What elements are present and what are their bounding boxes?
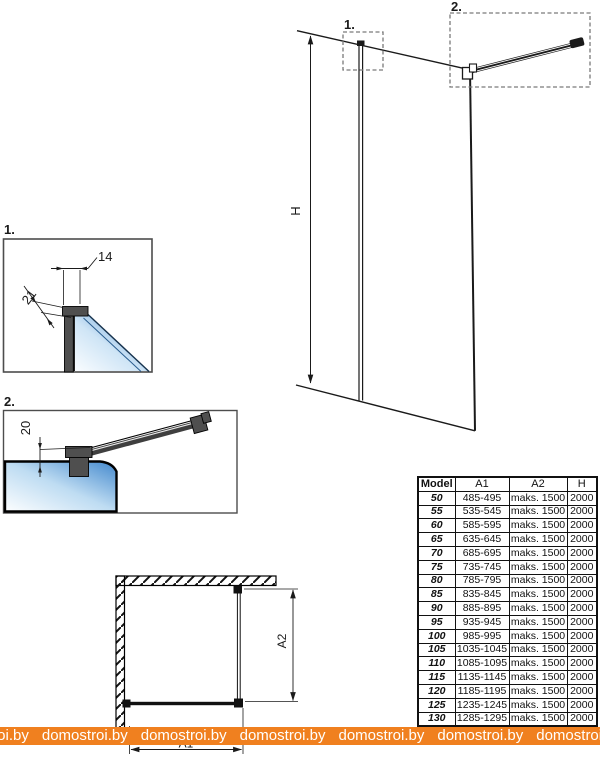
size-value-cell: 785-795 [455,574,509,588]
size-value-cell: 2000 [567,684,597,698]
model-cell: 50 [418,491,455,505]
size-value-cell: maks. 1500 [509,712,567,726]
size-table-row: 55535-545maks. 15002000 [418,505,597,519]
detail-2-view: 2. 20 [4,394,238,513]
callout-1-label: 1. [344,17,355,32]
size-table-row: 1051035-1045maks. 15002000 [418,643,597,657]
model-cell: 110 [418,657,455,671]
size-value-cell: 2000 [567,574,597,588]
size-table-row: 1151135-1145maks. 15002000 [418,671,597,685]
size-value-cell: 2000 [567,533,597,547]
watermark-text: domostroi.by [0,727,29,745]
watermark-text: domostroi.by [437,727,523,745]
model-cell: 95 [418,615,455,629]
size-table-row: 100985-995maks. 15002000 [418,629,597,643]
plan-dim-a2: A2 [244,589,298,702]
detail-1-view: 1. 14 [4,222,153,372]
size-value-cell: maks. 1500 [509,533,567,547]
size-value-cell: 935-945 [455,615,509,629]
size-table-header-cell: A2 [509,477,567,491]
glass-bottom-edge [296,385,475,431]
size-value-cell: 485-495 [455,491,509,505]
size-value-cell: maks. 1500 [509,546,567,560]
size-value-cell: maks. 1500 [509,671,567,685]
technical-drawing-page: H 1. 2. 1. [0,0,600,758]
model-cell: 75 [418,560,455,574]
size-table-header-cell: A1 [455,477,509,491]
size-value-cell: maks. 1500 [509,588,567,602]
model-cell: 105 [418,643,455,657]
size-table-row: 70685-695maks. 15002000 [418,546,597,560]
size-value-cell: maks. 1500 [509,643,567,657]
size-value-cell: maks. 1500 [509,519,567,533]
size-value-cell: 2000 [567,712,597,726]
detail-2-clamp [66,447,93,477]
plan-glass [123,699,244,708]
model-cell: 120 [418,684,455,698]
size-table-row: 60585-595maks. 15002000 [418,519,597,533]
size-value-cell: 2000 [567,671,597,685]
model-cell: 100 [418,629,455,643]
detail-1-label: 1. [4,222,15,237]
plan-support-bar [234,586,243,699]
watermark-text: domostroi.by [42,727,128,745]
size-value-cell: 1235-1245 [455,698,509,712]
size-table-row: 65635-645maks. 15002000 [418,533,597,547]
size-value-cell: 535-545 [455,505,509,519]
size-table-row: 75735-745maks. 15002000 [418,560,597,574]
size-value-cell: 1285-1295 [455,712,509,726]
support-bar [463,37,585,79]
dim-20-label: 20 [18,421,33,435]
watermark-text: domostroi.by [536,727,600,745]
model-cell: 115 [418,671,455,685]
size-value-cell: 685-695 [455,546,509,560]
model-cell: 60 [418,519,455,533]
size-value-cell: 1085-1095 [455,657,509,671]
size-table-row: 1201185-1195maks. 15002000 [418,684,597,698]
dim-a2-label: A2 [275,633,289,648]
size-value-cell: maks. 1500 [509,505,567,519]
size-value-cell: maks. 1500 [509,657,567,671]
model-cell: 55 [418,505,455,519]
size-value-cell: maks. 1500 [509,491,567,505]
size-value-cell: 2000 [567,519,597,533]
size-value-cell: 835-845 [455,588,509,602]
size-value-cell: 2000 [567,629,597,643]
size-table-row: 80785-795maks. 15002000 [418,574,597,588]
model-cell: 70 [418,546,455,560]
size-value-cell: 2000 [567,615,597,629]
size-value-cell: maks. 1500 [509,698,567,712]
callout-2-label: 2. [451,0,462,14]
size-value-cell: maks. 1500 [509,684,567,698]
size-value-cell: 2000 [567,657,597,671]
size-value-cell: 2000 [567,643,597,657]
size-value-cell: 1035-1045 [455,643,509,657]
size-table-header-cell: H [567,477,597,491]
plan-top-wall [116,576,276,586]
size-value-cell: 2000 [567,546,597,560]
size-table-row: 90885-895maks. 15002000 [418,602,597,616]
detail-2-label: 2. [4,394,15,409]
size-value-cell: maks. 1500 [509,615,567,629]
glass-right-edge [470,70,475,431]
size-value-cell: 2000 [567,602,597,616]
size-table-header-cell: Model [418,477,455,491]
size-table-container: ModelA1A2H 50485-495maks. 1500200055535-… [417,476,598,727]
size-value-cell: 735-745 [455,560,509,574]
size-table-header: ModelA1A2H [418,477,597,491]
model-cell: 65 [418,533,455,547]
height-dimension: H [288,36,311,383]
watermark-text: domostroi.by [339,727,425,745]
size-value-cell: 885-895 [455,602,509,616]
size-value-cell: maks. 1500 [509,560,567,574]
size-table-row: 1251235-1245maks. 15002000 [418,698,597,712]
size-value-cell: 585-595 [455,519,509,533]
watermark-text: domostroi.by [141,727,227,745]
watermark-text: domostroi.by [240,727,326,745]
detail-2-glass [5,462,117,512]
size-table-body: 50485-495maks. 1500200055535-545maks. 15… [418,491,597,726]
dim-14-label: 14 [98,249,112,264]
size-table-row: 50485-495maks. 15002000 [418,491,597,505]
elevation-view: H 1. 2. [288,0,590,431]
wall-profile [357,41,365,401]
size-value-cell: 2000 [567,491,597,505]
model-cell: 90 [418,602,455,616]
size-value-cell: 2000 [567,698,597,712]
size-value-cell: 1185-1195 [455,684,509,698]
model-cell: 130 [418,712,455,726]
size-value-cell: 2000 [567,560,597,574]
size-value-cell: 2000 [567,505,597,519]
model-cell: 80 [418,574,455,588]
size-table-row: 85835-845maks. 15002000 [418,588,597,602]
size-table: ModelA1A2H 50485-495maks. 1500200055535-… [417,476,598,727]
size-table-row: 95935-945maks. 15002000 [418,615,597,629]
watermark-band: domostroi.bydomostroi.bydomostroi.bydomo… [0,727,600,745]
size-value-cell: 2000 [567,588,597,602]
size-table-row: 1101085-1095maks. 15002000 [418,657,597,671]
size-value-cell: maks. 1500 [509,629,567,643]
size-value-cell: maks. 1500 [509,602,567,616]
size-table-row: 1301285-1295maks. 15002000 [418,712,597,726]
size-value-cell: 635-645 [455,533,509,547]
model-cell: 125 [418,698,455,712]
size-value-cell: 1135-1145 [455,671,509,685]
size-value-cell: maks. 1500 [509,574,567,588]
size-value-cell: 985-995 [455,629,509,643]
model-cell: 85 [418,588,455,602]
height-dim-label: H [288,206,303,215]
